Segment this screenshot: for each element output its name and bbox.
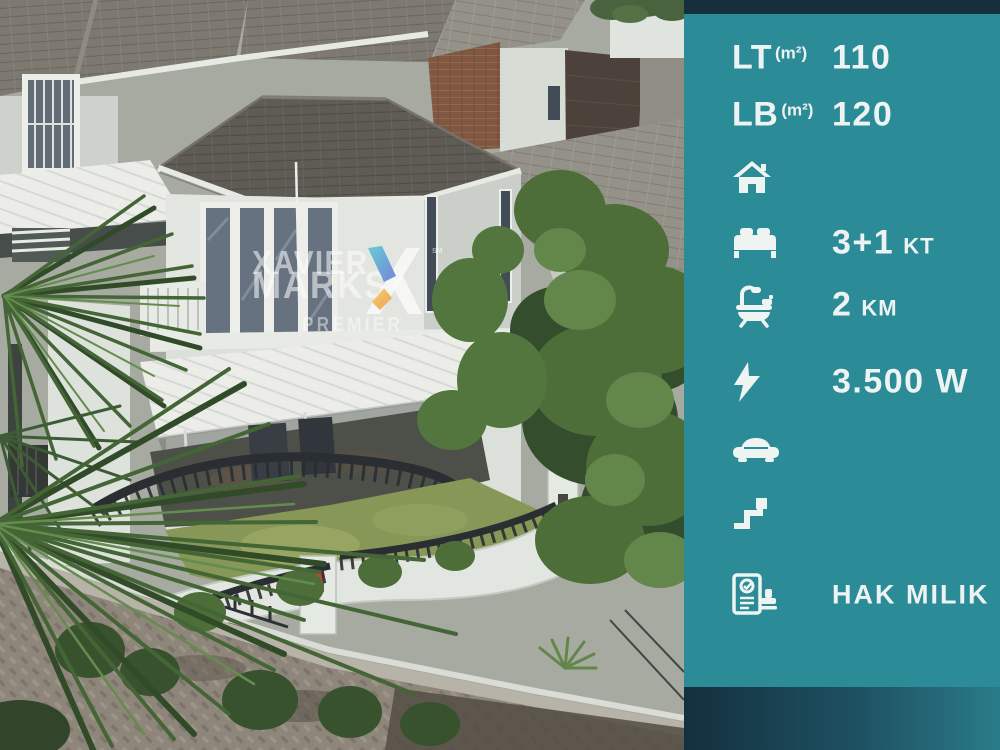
- info-panel: LT(m²) 110 LB(m²) 120: [684, 0, 1000, 750]
- row-bathrooms: 2KM: [684, 283, 1000, 327]
- panel-top-strip: [684, 0, 1000, 14]
- row-certificate: HAK MILIK: [684, 573, 1000, 617]
- house-scene-illustration: [0, 0, 684, 750]
- row-building-area: LB(m²) 120: [684, 93, 1000, 137]
- row-bedrooms: 3+1KT: [684, 221, 1000, 265]
- row-electric-power: 3.500 W: [684, 360, 1000, 404]
- property-photo: XAVIER MARKS SM PREMIER: [0, 0, 684, 750]
- power-value: 3.500 W: [832, 363, 969, 402]
- real-estate-listing: XAVIER MARKS SM PREMIER: [0, 0, 1000, 750]
- bathrooms-value: 2: [832, 286, 852, 324]
- bath-icon: [732, 282, 784, 328]
- land-area-unit: (m²): [775, 43, 807, 63]
- xavier-marks-x-logo: [362, 246, 426, 316]
- watermark-premier: PREMIER: [302, 314, 403, 337]
- building-area-value: 120: [832, 96, 893, 135]
- certificate-value: HAK MILIK: [832, 580, 989, 611]
- row-house-type: [684, 155, 1000, 199]
- house-icon: [732, 159, 784, 195]
- bed-icon: [732, 227, 784, 259]
- row-carport: [684, 428, 1000, 472]
- row-land-area: LT(m²) 110: [684, 36, 1000, 80]
- stairs-icon: [732, 496, 784, 532]
- building-area-label: LB: [732, 96, 778, 135]
- certificate-icon: [732, 573, 784, 617]
- bedrooms-value: 3+1: [832, 224, 894, 262]
- lightning-icon: [732, 362, 784, 402]
- row-floors: [684, 492, 1000, 536]
- car-icon: [732, 437, 784, 463]
- panel-footer: [684, 687, 1000, 750]
- bedrooms-suffix: KT: [903, 234, 934, 259]
- land-area-value: 110: [832, 39, 891, 78]
- land-area-label: LT: [732, 39, 772, 78]
- watermark: XAVIER MARKS SM PREMIER: [252, 250, 492, 350]
- building-area-unit: (m²): [781, 100, 813, 120]
- watermark-sm-mark: SM: [432, 248, 443, 255]
- bathrooms-suffix: KM: [861, 296, 897, 321]
